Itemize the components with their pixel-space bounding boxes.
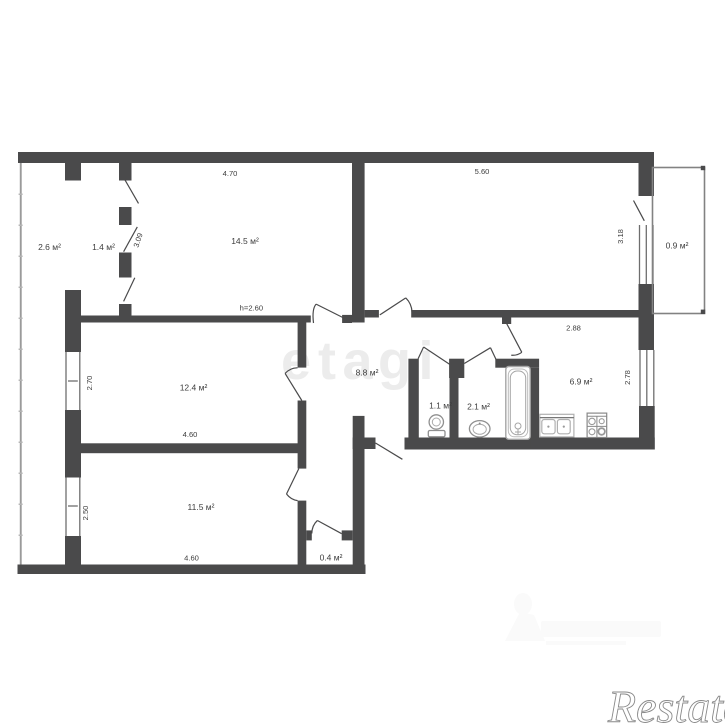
svg-text:2.50: 2.50 <box>81 506 90 521</box>
svg-text:0.4 м²: 0.4 м² <box>320 553 343 563</box>
svg-text:2.78: 2.78 <box>623 370 632 385</box>
svg-text:3.18: 3.18 <box>616 229 625 244</box>
svg-text:1.4 м²: 1.4 м² <box>92 242 115 252</box>
svg-text:4.60: 4.60 <box>183 430 198 439</box>
svg-text:h=2.60: h=2.60 <box>240 304 263 313</box>
svg-text:12.4 м²: 12.4 м² <box>180 383 208 393</box>
svg-text:Restate: Restate <box>607 681 725 725</box>
svg-text:8.8 м²: 8.8 м² <box>356 368 379 378</box>
svg-text:2.6 м²: 2.6 м² <box>38 242 61 252</box>
svg-text:4.70: 4.70 <box>223 169 238 178</box>
svg-text:1.1 м²: 1.1 м² <box>429 401 452 411</box>
svg-text:6.9 м²: 6.9 м² <box>570 377 593 387</box>
svg-text:11.5 м²: 11.5 м² <box>188 502 215 512</box>
svg-text:4.60: 4.60 <box>184 554 199 563</box>
svg-text:5.60: 5.60 <box>475 167 490 176</box>
svg-text:0.9 м²: 0.9 м² <box>666 241 689 251</box>
svg-text:2.1 м²: 2.1 м² <box>467 402 490 412</box>
svg-text:2.88: 2.88 <box>566 324 581 333</box>
svg-text:2.70: 2.70 <box>85 376 94 391</box>
svg-text:14.5 м²: 14.5 м² <box>231 236 259 246</box>
